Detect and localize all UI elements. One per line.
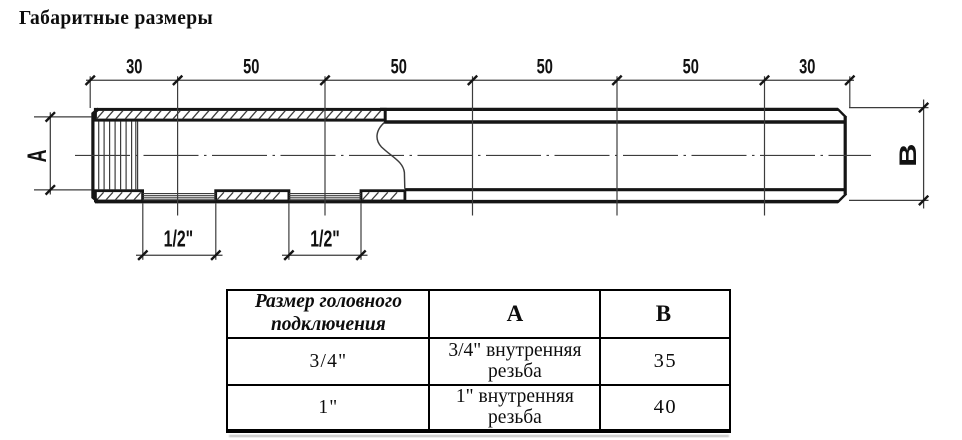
svg-text:30: 30	[126, 54, 142, 79]
svg-text:1/2": 1/2"	[164, 227, 194, 253]
svg-text:1/2": 1/2"	[310, 227, 340, 253]
svg-text:B: B	[895, 144, 922, 167]
svg-text:50: 50	[243, 54, 259, 79]
svg-text:50: 50	[537, 54, 553, 79]
svg-text:A: A	[21, 150, 52, 163]
svg-text:30: 30	[799, 54, 815, 79]
svg-text:50: 50	[391, 54, 407, 79]
svg-text:50: 50	[683, 54, 699, 79]
